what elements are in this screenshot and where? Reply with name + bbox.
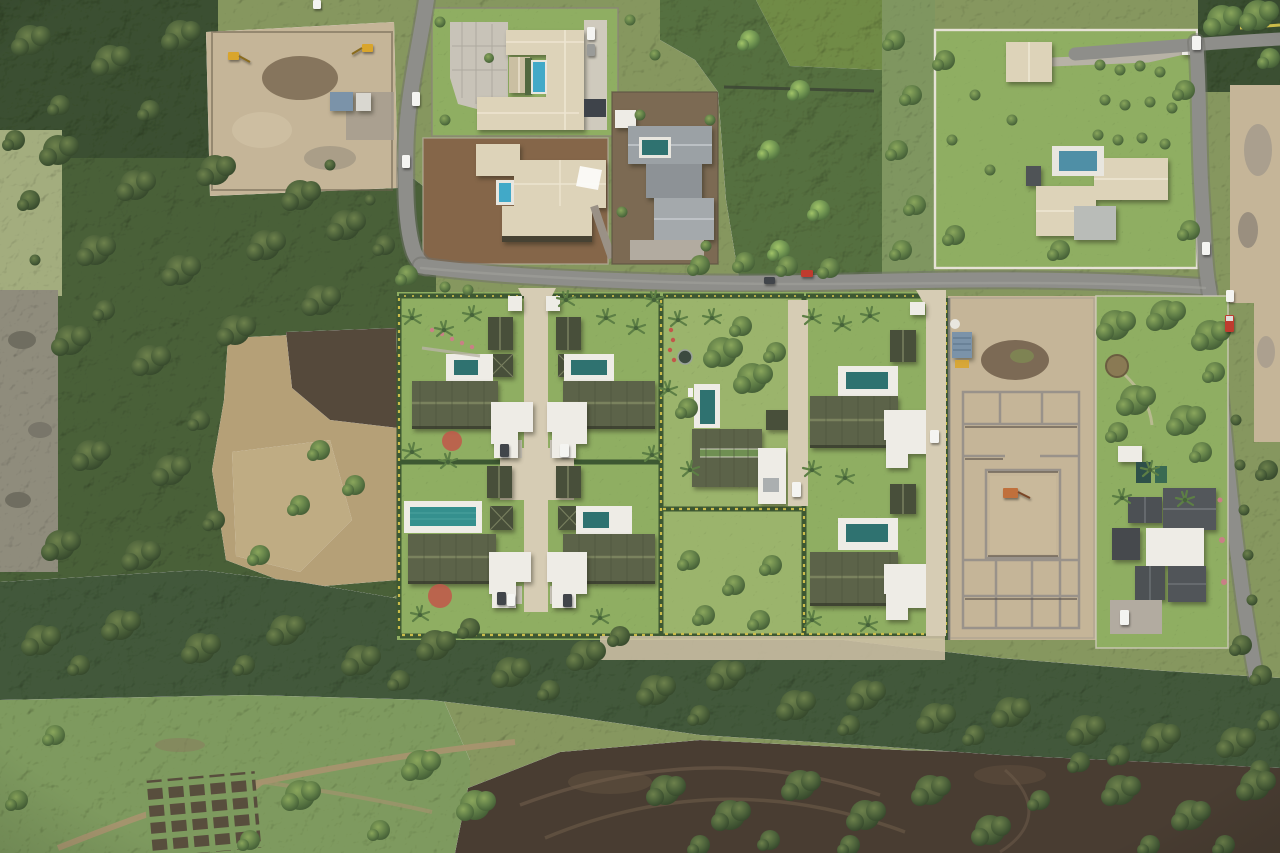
aerial-photo	[0, 0, 1280, 853]
photo-vignette	[0, 0, 1280, 853]
